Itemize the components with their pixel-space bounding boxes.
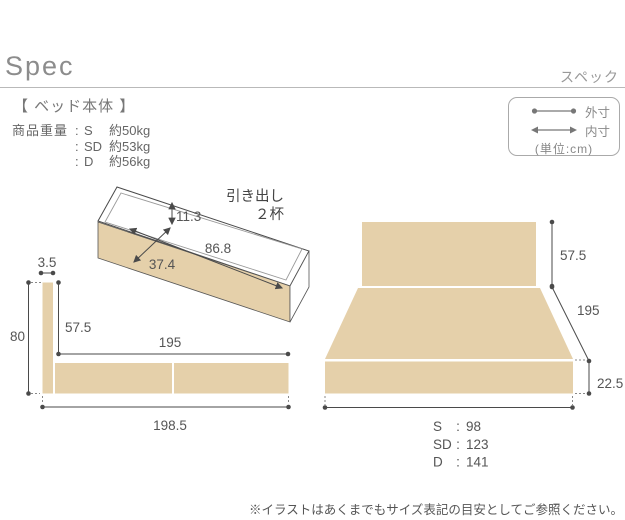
- front-view-diagram: 57.5 195 22.5 S : 98 SD : 123: [323, 220, 624, 470]
- side-headboard-above-value: 57.5: [65, 320, 91, 335]
- drawer-length-value: 86.8: [205, 241, 231, 256]
- side-base-drawer-1: [55, 363, 172, 394]
- front-width-table: S : 98 SD : 123 D : 141: [433, 419, 489, 470]
- svg-text::: :: [456, 437, 460, 452]
- disclaimer-note: ※イラストはあくまでもサイズ表記の目安としてご参照ください。: [249, 499, 623, 518]
- side-headboard: [43, 283, 54, 394]
- front-headboard-height-value: 57.5: [560, 248, 586, 263]
- front-mattress-surface: [325, 288, 573, 359]
- spec-sheet: Spec スペック 【 ベッド本体 】 商品重量:S約50kg :SD約53kg…: [0, 0, 625, 520]
- side-total-length-value: 198.5: [153, 418, 187, 433]
- width-value: 141: [466, 455, 489, 470]
- width-size: S: [433, 419, 442, 434]
- side-headboard-thickness-value: 3.5: [38, 255, 57, 270]
- front-base-height-value: 22.5: [597, 376, 623, 391]
- side-base-drawer-2: [174, 363, 289, 394]
- drawer-depth-value: 11.3: [176, 209, 201, 224]
- drawer-title: 引き出し: [226, 188, 284, 205]
- drawer-diagram: 11.3 86.8 37.4 引き出し ２杯: [98, 187, 309, 322]
- front-headboard: [362, 222, 536, 286]
- side-inner-length-value: 195: [159, 335, 182, 350]
- side-total-height-value: 80: [10, 329, 25, 344]
- front-base: [325, 362, 573, 394]
- spec-diagrams: 11.3 86.8 37.4 引き出し ２杯 3.5 80 57.5: [0, 0, 625, 520]
- drawer-width-value: 37.4: [149, 257, 176, 272]
- width-size: D: [433, 455, 443, 470]
- width-size: SD: [433, 437, 452, 452]
- svg-text::: :: [456, 455, 460, 470]
- front-depth-value: 195: [577, 303, 600, 318]
- width-value: 98: [466, 419, 481, 434]
- svg-text::: :: [456, 419, 460, 434]
- drawer-count: ２杯: [255, 206, 284, 223]
- width-value: 123: [466, 437, 489, 452]
